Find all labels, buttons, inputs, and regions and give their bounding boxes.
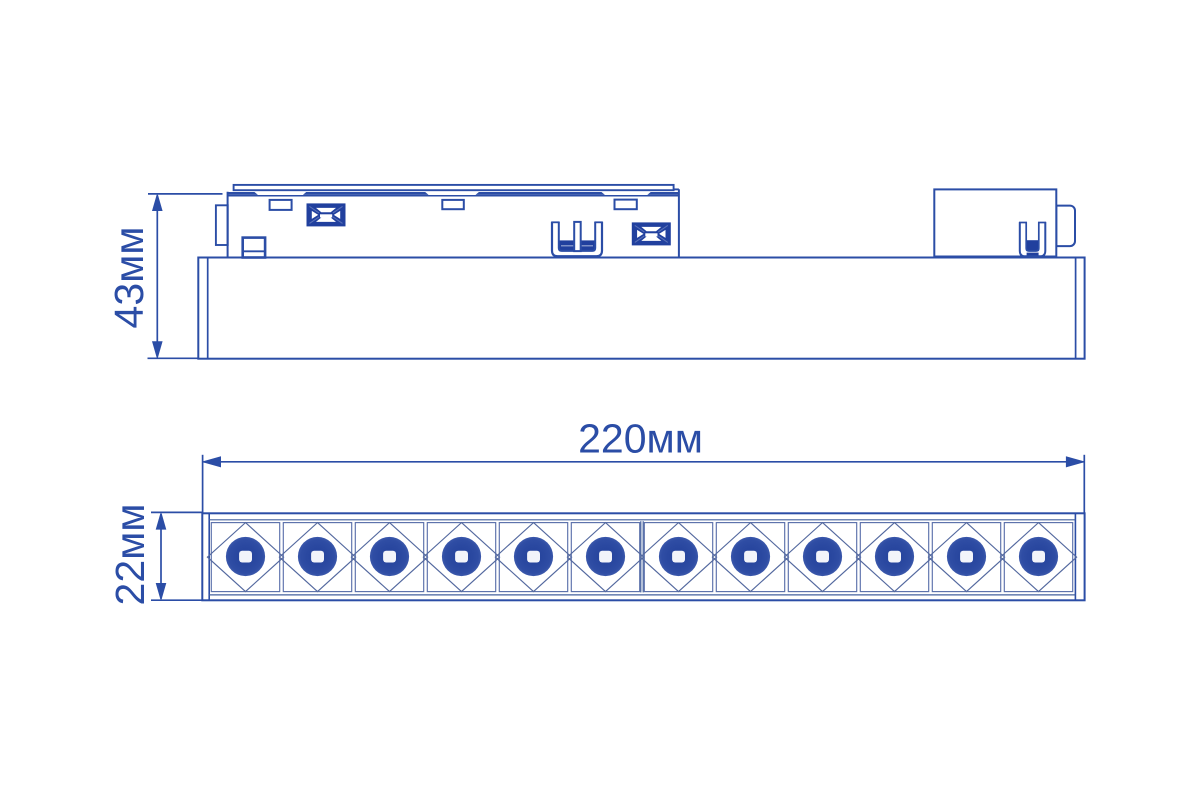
svg-text:220мм: 220мм [578, 416, 703, 462]
svg-text:43мм: 43мм [106, 227, 152, 329]
svg-text:22мм: 22мм [107, 504, 153, 606]
